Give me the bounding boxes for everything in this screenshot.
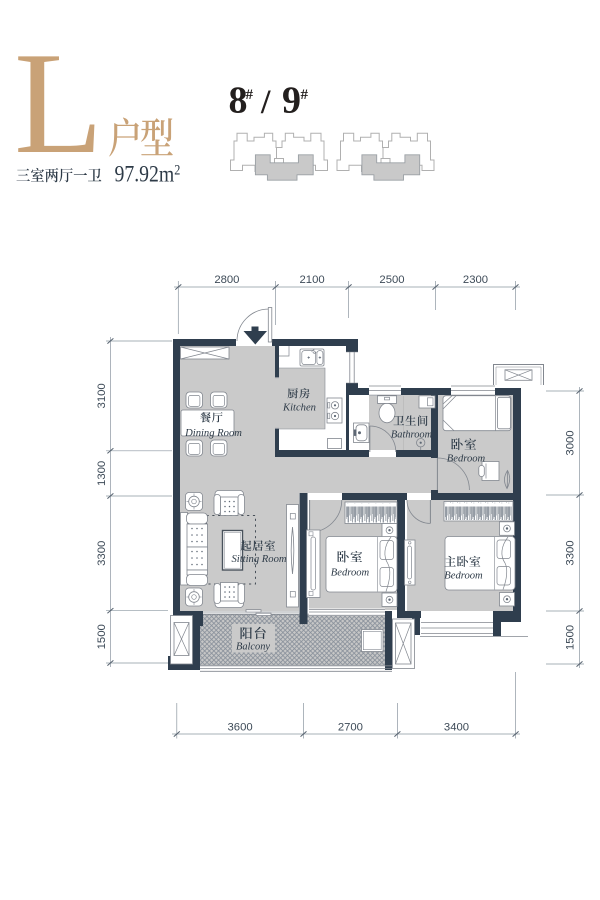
- svg-text:Balcony: Balcony: [236, 642, 270, 653]
- svg-text:1500: 1500: [565, 625, 577, 650]
- svg-text:2300: 2300: [463, 274, 488, 286]
- svg-text:2700: 2700: [338, 722, 363, 734]
- svg-text:97.92m2: 97.92m2: [115, 161, 181, 187]
- svg-text:Bedroom: Bedroom: [331, 568, 370, 579]
- svg-text:3300: 3300: [96, 541, 108, 566]
- svg-text:1500: 1500: [96, 624, 108, 649]
- svg-text:L: L: [14, 22, 103, 184]
- svg-text:2100: 2100: [300, 274, 325, 286]
- svg-text:3300: 3300: [565, 540, 577, 565]
- svg-text:2500: 2500: [379, 274, 404, 286]
- svg-text:Bedroom: Bedroom: [447, 454, 486, 465]
- svg-text:Bedroom: Bedroom: [444, 571, 483, 582]
- svg-text:3000: 3000: [565, 430, 577, 455]
- svg-text:2800: 2800: [214, 274, 239, 286]
- svg-text:1300: 1300: [96, 461, 108, 486]
- svg-text:3400: 3400: [444, 722, 469, 734]
- svg-text:3600: 3600: [228, 722, 253, 734]
- svg-text:Bathroom: Bathroom: [391, 430, 433, 441]
- svg-text:8#/9#: 8#/9#: [229, 80, 309, 122]
- svg-text:Sitting Room: Sitting Room: [231, 554, 286, 565]
- svg-text:Dining Room: Dining Room: [184, 428, 242, 439]
- svg-text:Kitchen: Kitchen: [282, 403, 316, 414]
- svg-text:3100: 3100: [96, 383, 108, 408]
